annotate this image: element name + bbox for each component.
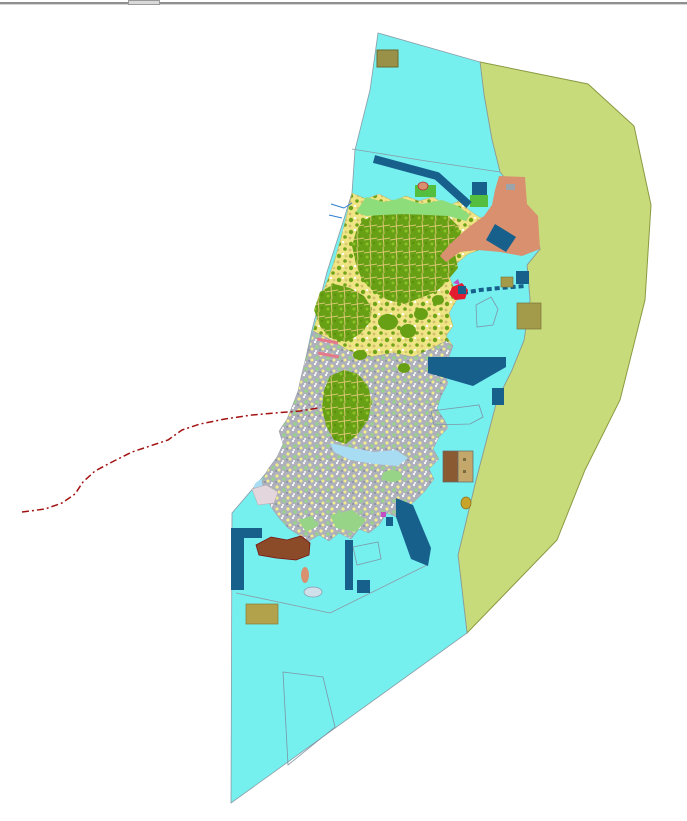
forest-patch-small-6: [398, 363, 410, 373]
green-parcel-2: [470, 195, 488, 207]
facility-building-west[interactable]: [443, 451, 458, 482]
harbor-east-annex: [492, 388, 504, 405]
forest-patch-small-3: [414, 308, 428, 320]
magenta-dot-south: [381, 512, 386, 517]
forest-patch-small-5: [353, 350, 367, 360]
forest-patch-small-4: [432, 295, 444, 305]
khaki-parcel-north[interactable]: [377, 50, 398, 67]
map-canvas[interactable]: [0, 0, 687, 821]
forest-patch-small-2: [400, 324, 416, 338]
green-patch-south-3: [382, 470, 402, 482]
islet-pale: [304, 587, 322, 597]
port-feature-navy: [458, 286, 466, 294]
marine-structure-ne[interactable]: [516, 271, 529, 284]
pier-south[interactable]: [345, 540, 353, 590]
islet-salmon: [301, 567, 309, 583]
salmon-dot-north: [418, 182, 428, 190]
gold-feature: [461, 497, 471, 509]
smudge-gray: [506, 184, 515, 190]
khaki-parcel-bottom[interactable]: [246, 604, 278, 624]
application-window: [0, 0, 687, 821]
stream-2: [329, 215, 342, 218]
facility-dot-1: [463, 458, 466, 461]
marine-parcel-ne-1: [472, 182, 487, 195]
khaki-parcel-small: [501, 277, 513, 287]
facility-dot-2: [463, 470, 466, 473]
blue-dot-south: [386, 517, 393, 526]
khaki-parcel-large[interactable]: [517, 303, 541, 329]
forest-patch-small-1: [378, 314, 398, 330]
facility-building-east[interactable]: [458, 451, 473, 482]
map-svg[interactable]: [0, 0, 687, 821]
marine-block-south[interactable]: [357, 580, 370, 593]
